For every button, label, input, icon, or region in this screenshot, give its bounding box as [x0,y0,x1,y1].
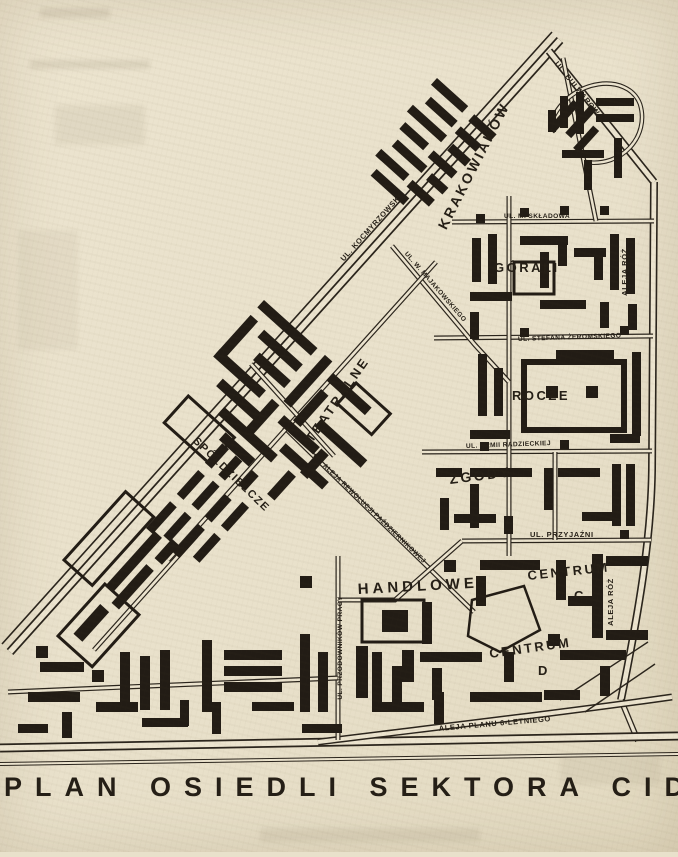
district-label-gorali: GÓRALI [494,260,560,275]
street-label-aleja-roz-mid: ALEJA RÓŻ [606,578,615,626]
street-label-aleja-roz-top: ALEJA RÓŻ [620,248,629,296]
street-label-rewolucji: UL. ALEJA REWOLUCJI PAŹDZIERNIKOWEJ [311,451,428,564]
street-label-zeromskiego: UL. STEFANA ŻEROMSKIEGO [518,331,622,343]
street-label-skladowa: UL. M. SKŁADOWA [504,213,570,220]
district-label-urocze: ROCZE [512,388,570,403]
city-plan-map: UL. KOCMYRZOWSKA UL. BULWAROWA ALEJA RÓŻ… [0,0,678,852]
district-label-centrum-d-letter: D [538,663,550,678]
street-label-przyjazni: UL. PRZYJAŹNI [530,530,594,539]
district-gorali-buildings [470,234,637,334]
district-label-centrum-d: CENTRUM [488,635,572,661]
street-label-przodownikow: UL. PRZODOWNIKÓW PRACY [335,596,344,700]
district-label-centrum-c-letter: C [574,588,586,603]
district-label-zgody: ZGODY [448,464,512,487]
street-label-armii-radzieckiej: UL. ARMII RADZIECKIEJ [466,440,551,450]
district-label-handlowe: HANDLOWE [357,575,478,598]
scanned-map-page: UL. KOCMYRZOWSKA UL. BULWAROWA ALEJA RÓŻ… [0,0,678,852]
map-title: PLAN OSIEDLI SEKTORA CID. [4,772,664,803]
